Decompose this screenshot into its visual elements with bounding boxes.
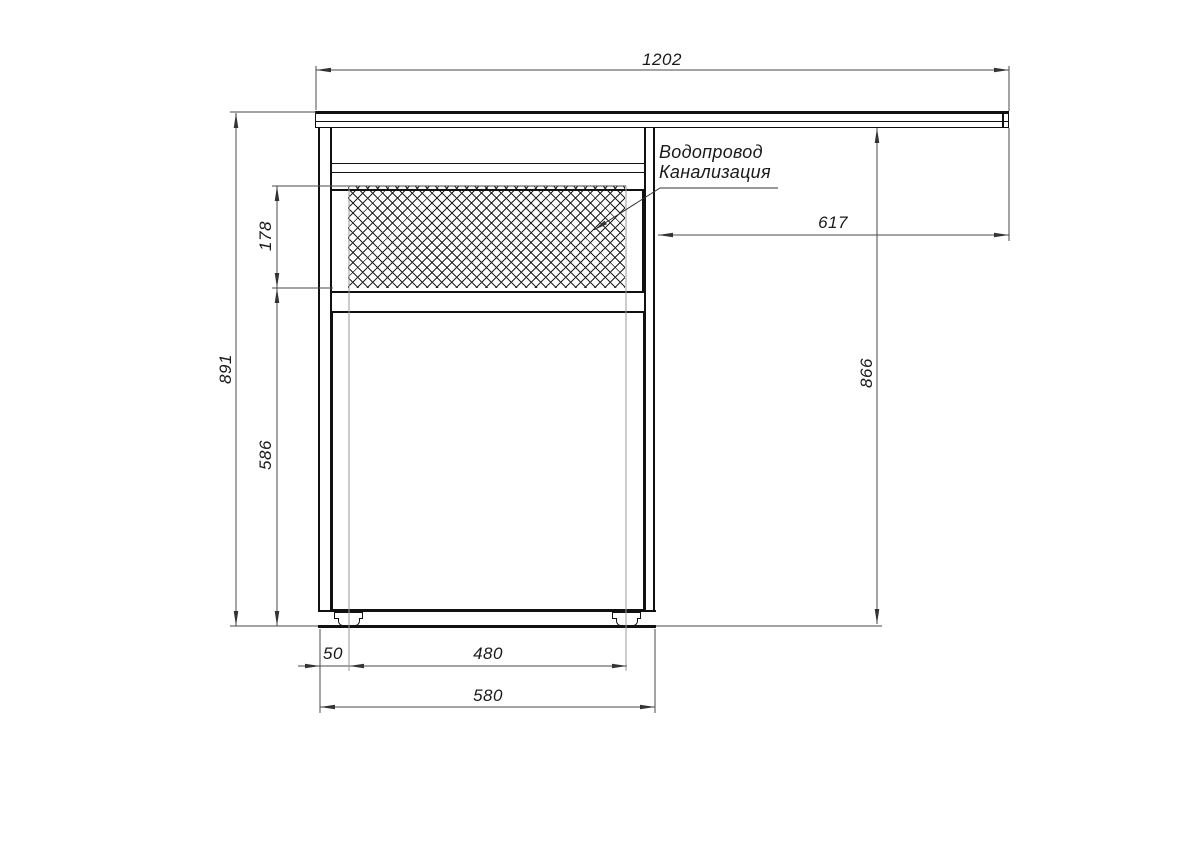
countertop-edge-line [316, 121, 1008, 122]
dim-text-countertop-right-span: 617 [818, 213, 848, 233]
dim-text-lower-section-height: 586 [256, 440, 276, 470]
service-annotation: Водопровод Канализация [659, 143, 771, 182]
left-wall-outer-line [318, 127, 320, 611]
dim-text-service-zone-height: 178 [256, 221, 276, 251]
cabinet-bottom-line [318, 610, 656, 612]
dim-text-countertop-width: 1202 [642, 50, 682, 70]
service-annotation-line2: Канализация [659, 163, 771, 183]
ground-line [318, 625, 656, 628]
door-panel [331, 311, 645, 611]
service-zone-frame [330, 189, 644, 293]
countertop [315, 111, 1009, 128]
top-rail-line-upper [331, 163, 644, 165]
dim-text-total-height: 891 [216, 354, 236, 384]
dim-text-cabinet-width: 580 [473, 686, 503, 706]
dim-text-feet-span: 480 [473, 644, 503, 664]
right-wall-outer-line [653, 127, 655, 611]
countertop-right-cap-line [1002, 114, 1004, 127]
dim-text-foot-inset: 50 [323, 644, 343, 664]
dim-text-body-height: 866 [857, 358, 877, 388]
top-rail-line-lower [331, 172, 644, 174]
service-annotation-line1: Водопровод [659, 143, 771, 163]
technical-drawing-canvas: 1202 617 891 178 586 866 50 480 580 Водо… [0, 0, 1200, 849]
